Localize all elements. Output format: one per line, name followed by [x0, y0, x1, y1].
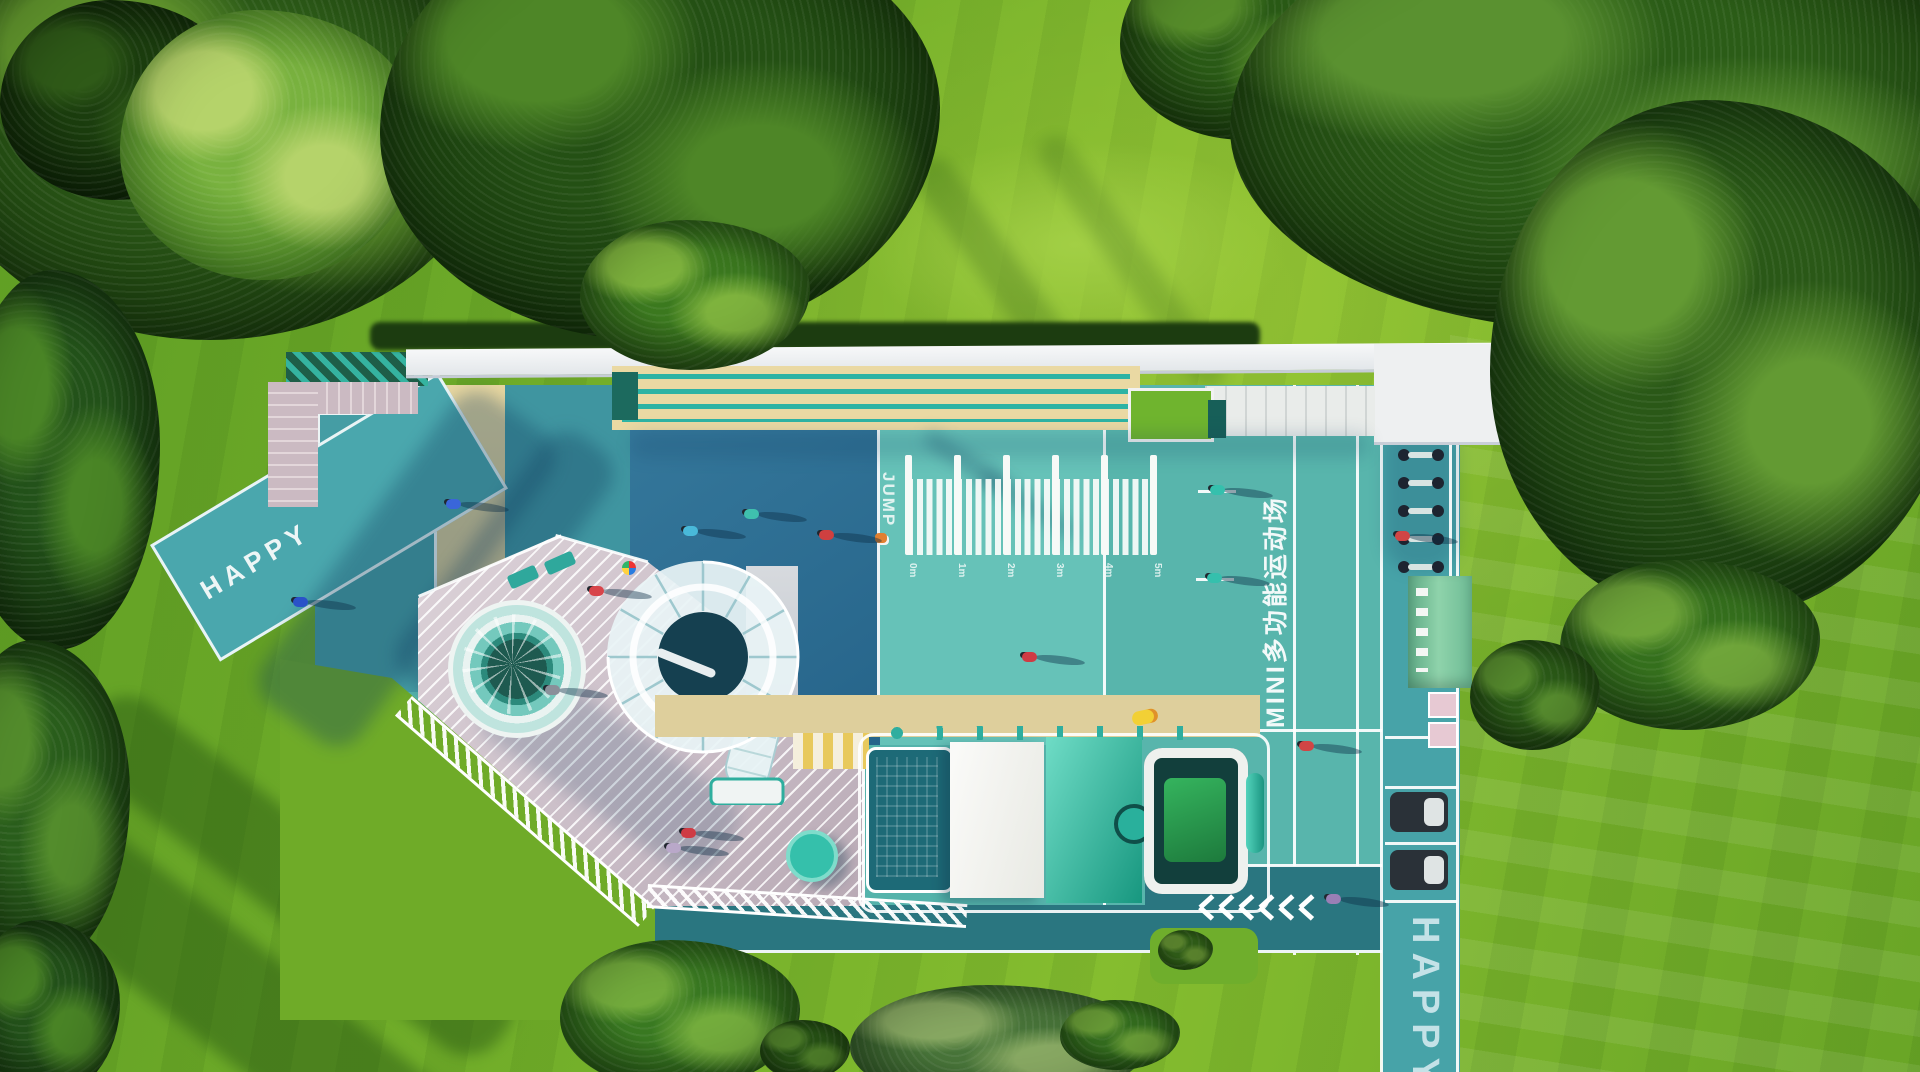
lane-line [655, 950, 1385, 953]
exercising-person [1207, 573, 1223, 585]
round-table [786, 830, 838, 882]
bleacher-end-block [612, 372, 638, 420]
ruler-bar [954, 455, 961, 555]
person [819, 530, 835, 542]
person [683, 526, 699, 538]
bush [760, 1020, 850, 1072]
climbing-net [462, 614, 562, 714]
bay-line [1385, 842, 1457, 845]
exercise-bike [1398, 446, 1444, 464]
exercising-person [1210, 485, 1226, 497]
path-border [1380, 356, 1383, 1072]
ruler-bar [1150, 455, 1157, 555]
trampoline-grid [876, 757, 938, 877]
aerial-playground-scene: HAPPY [0, 0, 1920, 1072]
exercise-bike [1398, 558, 1444, 576]
exercise-bike [1398, 502, 1444, 520]
ruler-tick-label: 3m [1054, 563, 1065, 589]
person [1299, 741, 1315, 753]
fitness-machine [1390, 850, 1448, 890]
jump-ruler: 0m 1m 2m 3m 4m 5m [905, 455, 1159, 595]
person [1395, 531, 1411, 543]
jump-ground-text: JUMP [878, 472, 898, 527]
truck-cab-mat [1164, 778, 1226, 862]
happy-right-ground-text: HAPPY [1403, 916, 1446, 1072]
bay-line [1385, 786, 1457, 789]
ruler-bar [905, 455, 912, 555]
chevron-arrow-icon [1300, 893, 1312, 919]
ruler-tick-label: 4m [1103, 563, 1114, 589]
tree-canopy [1490, 100, 1920, 620]
person [1326, 894, 1342, 906]
person [545, 685, 561, 697]
truck-awning-white [950, 742, 1044, 898]
fitness-machine [1390, 792, 1448, 832]
ruler-bar [1052, 455, 1059, 555]
ruler-bar [1101, 455, 1108, 555]
spiral-slide [593, 545, 818, 805]
person [446, 499, 462, 511]
person [666, 843, 682, 855]
stool-row [890, 726, 1200, 740]
ruler-tick-label: 2m [1005, 563, 1016, 589]
picnic-table [1428, 692, 1458, 718]
ruler-short-bars [907, 479, 1155, 555]
person [589, 586, 605, 598]
ruler-tick-label: 1m [956, 563, 967, 589]
ruler-tick-label: 0m [907, 563, 918, 589]
person [681, 828, 697, 840]
bleacher-stripes [622, 374, 1130, 422]
roof-panels [1205, 386, 1375, 436]
chevron-arrow-icon [1280, 893, 1292, 919]
ruler-tick-label: 5m [1152, 563, 1163, 589]
bay-line [1385, 900, 1457, 903]
pinwheel-toy [622, 561, 636, 575]
person [744, 509, 760, 521]
exercise-bike [1398, 474, 1444, 492]
kiosk-skylights [1416, 588, 1428, 672]
wood-boardwalk [268, 382, 318, 507]
person [293, 597, 309, 609]
happy-left-ground-text: HAPPY [195, 516, 316, 606]
picnic-table [1428, 722, 1458, 748]
person [1022, 652, 1038, 664]
ruler-bar [1003, 455, 1010, 555]
canopy-roof-right [1374, 344, 1506, 445]
truck-bumper [1246, 773, 1264, 853]
court-name-ground-text: MINI多功能运动场 [1256, 495, 1292, 728]
